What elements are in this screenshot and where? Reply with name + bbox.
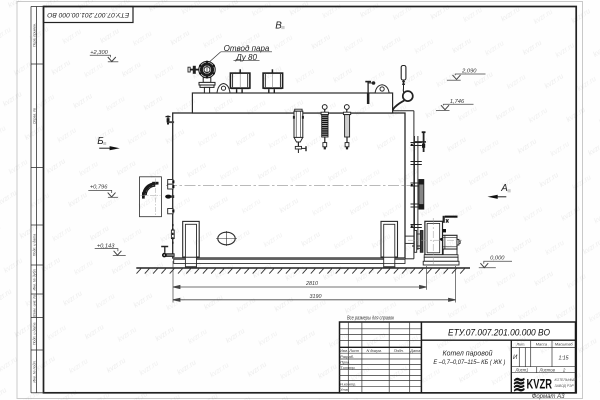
svg-text:Формат А3: Формат А3 (532, 394, 565, 400)
